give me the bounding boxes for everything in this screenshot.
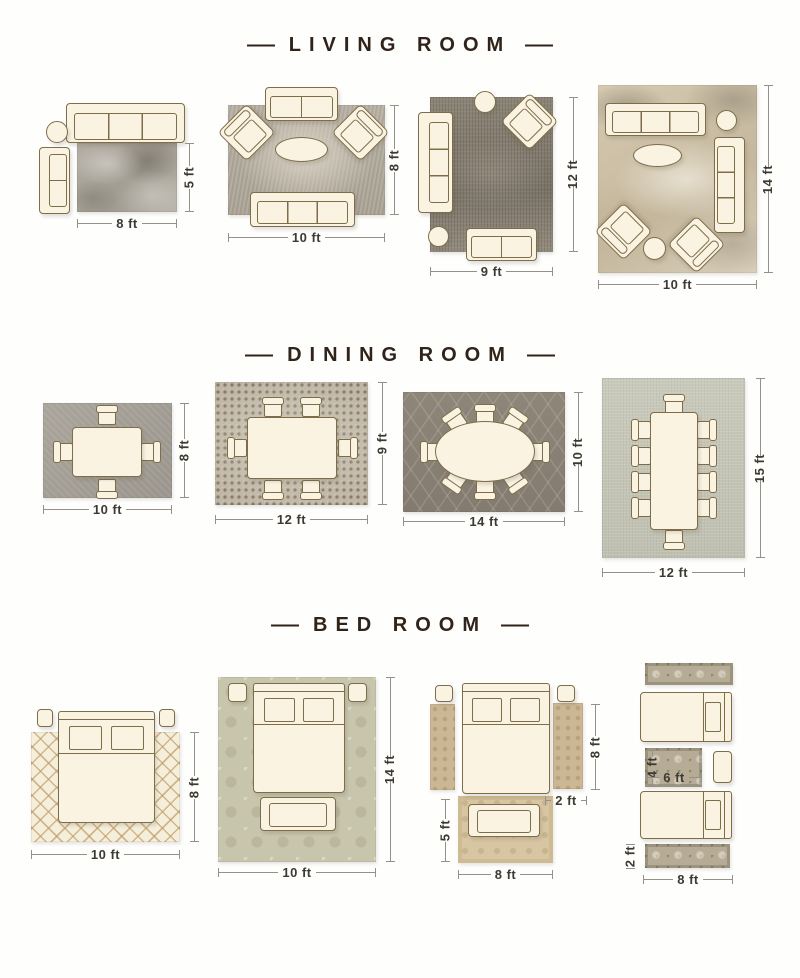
rug-height-dimension: 5 ft <box>181 143 197 212</box>
bed <box>58 711 155 823</box>
dimension-label: 8 ft <box>187 776 202 798</box>
rug-width-dimension: 10 ft <box>43 501 172 517</box>
oval-coffee-table <box>633 144 682 167</box>
dining-chair <box>300 480 322 500</box>
section-title-bed-room: — BED ROOM — <box>0 614 800 637</box>
nightstand <box>435 685 453 702</box>
pillow <box>303 698 334 722</box>
rug-width-dimension: 10 ft <box>228 229 385 245</box>
dining-chair <box>697 471 717 493</box>
dining-chair <box>697 419 717 441</box>
rug-width-dimension: 10 ft <box>31 846 180 862</box>
rug-width-dimension: 12 ft <box>602 564 745 580</box>
side-runner-rug <box>553 703 583 789</box>
bed <box>253 683 345 793</box>
dining-chair <box>338 437 358 459</box>
sofa <box>714 137 745 233</box>
nightstand <box>228 683 247 702</box>
pillow <box>472 698 502 722</box>
dining-table <box>72 427 142 477</box>
runner-height-dimension: 2 ft <box>622 844 638 868</box>
title-dash-left: — <box>245 344 273 367</box>
section-title-text: LIVING ROOM <box>289 34 511 57</box>
dimension-label: 2 ft <box>623 846 638 868</box>
layout-width-dimension: 8 ft <box>643 871 733 887</box>
round-side-table <box>46 121 68 143</box>
rug-width-dimension: 10 ft <box>218 864 376 880</box>
dimension-label: 8 ft <box>588 736 603 758</box>
dimension-label: 9 ft <box>375 433 390 455</box>
title-dash-right: — <box>527 344 555 367</box>
center-rug-width-dimension: 6 ft <box>646 769 702 785</box>
section-title-text: BED ROOM <box>313 614 487 637</box>
rug-height-dimension: 12 ft <box>565 97 581 252</box>
dimension-label: 14 ft <box>383 755 398 784</box>
pillow <box>111 726 143 750</box>
sofa <box>418 112 453 213</box>
runner-width-dimension: 2 ft <box>545 792 587 808</box>
runner-rug <box>645 844 730 868</box>
rug-height-dimension: 8 ft <box>386 105 402 215</box>
sofa <box>39 147 70 214</box>
round-side-table <box>474 91 496 113</box>
twin-bed <box>640 692 732 742</box>
side-runner-rug <box>430 704 455 790</box>
dining-chair <box>53 441 73 463</box>
dining-chair <box>262 480 284 500</box>
runner-rug <box>645 663 733 685</box>
pillow <box>705 800 721 829</box>
dimension-label: 12 ft <box>566 160 581 189</box>
rug-height-dimension: 10 ft <box>570 392 586 512</box>
nightstand <box>37 709 53 727</box>
pillow <box>264 698 295 722</box>
section-title-dining-room: — DINING ROOM — <box>0 344 800 367</box>
dimension-label: 8 ft <box>387 149 402 171</box>
nightstand <box>557 685 575 702</box>
title-dash-right: — <box>525 34 553 57</box>
foot-rug-height-dimension: 5 ft <box>437 799 453 862</box>
nightstand <box>159 709 175 727</box>
title-dash-left: — <box>271 614 299 637</box>
dining-chair <box>474 480 496 500</box>
dining-chair <box>631 497 651 519</box>
rug-height-dimension: 9 ft <box>374 382 390 505</box>
loveseat <box>466 228 537 261</box>
dining-chair <box>631 471 651 493</box>
bench <box>260 797 336 831</box>
dining-chair <box>631 419 651 441</box>
rug-height-dimension: 8 ft <box>176 403 192 498</box>
dining-chair <box>663 530 685 550</box>
dimension-label: 8 ft <box>177 440 192 462</box>
dining-table <box>247 417 337 479</box>
rug-8x5 <box>77 143 177 212</box>
sofa <box>66 103 185 143</box>
dining-table <box>650 412 698 530</box>
nightstand <box>713 751 732 783</box>
dimension-label: 5 ft <box>182 167 197 189</box>
dining-chair <box>141 441 161 463</box>
bed <box>462 683 550 794</box>
loveseat <box>265 87 338 121</box>
dining-chair <box>300 397 322 417</box>
dimension-label: 5 ft <box>438 820 453 842</box>
twin-bed <box>640 791 732 839</box>
dining-chair <box>663 394 685 414</box>
rug-height-dimension: 8 ft <box>186 732 202 842</box>
title-dash-right: — <box>501 614 529 637</box>
rug-width-dimension: 12 ft <box>215 511 368 527</box>
title-dash-left: — <box>247 34 275 57</box>
dimension-label: 10 ft <box>571 437 586 466</box>
runner-height-dimension: 8 ft <box>587 704 603 790</box>
pillow <box>705 702 721 733</box>
rug-size-guide-infographic: — LIVING ROOM — 8 ft 5 ft 10 ft 8 ft 9 f… <box>0 0 800 978</box>
rug-width-dimension: 10 ft <box>598 276 757 292</box>
rug-height-dimension: 14 ft <box>760 85 776 273</box>
dining-chair <box>262 397 284 417</box>
foot-rug-width-dimension: 8 ft <box>458 866 553 882</box>
rug-height-dimension: 15 ft <box>752 378 768 558</box>
section-title-living-room: — LIVING ROOM — <box>0 34 800 57</box>
sofa <box>250 192 355 227</box>
dining-chair <box>96 479 118 499</box>
dining-chair <box>631 445 651 467</box>
round-ottoman <box>643 237 666 260</box>
rug-width-dimension: 9 ft <box>430 263 553 279</box>
rug-width-dimension: 14 ft <box>403 513 565 529</box>
pillow <box>69 726 101 750</box>
dining-chair <box>697 445 717 467</box>
oval-coffee-table <box>275 137 328 162</box>
bench <box>468 804 540 837</box>
dining-chair <box>96 405 118 425</box>
pillow <box>510 698 540 722</box>
dining-chair <box>227 437 247 459</box>
nightstand <box>348 683 367 702</box>
dining-chair <box>697 497 717 519</box>
sofa <box>605 103 706 136</box>
round-ottoman <box>428 226 449 247</box>
rug-width-dimension: 8 ft <box>77 215 177 231</box>
round-side-table <box>716 110 737 131</box>
oval-dining-table <box>435 421 535 482</box>
rug-height-dimension: 14 ft <box>382 677 398 862</box>
dimension-label: 14 ft <box>761 164 776 193</box>
dimension-label: 15 ft <box>753 453 768 482</box>
section-title-text: DINING ROOM <box>287 344 513 367</box>
